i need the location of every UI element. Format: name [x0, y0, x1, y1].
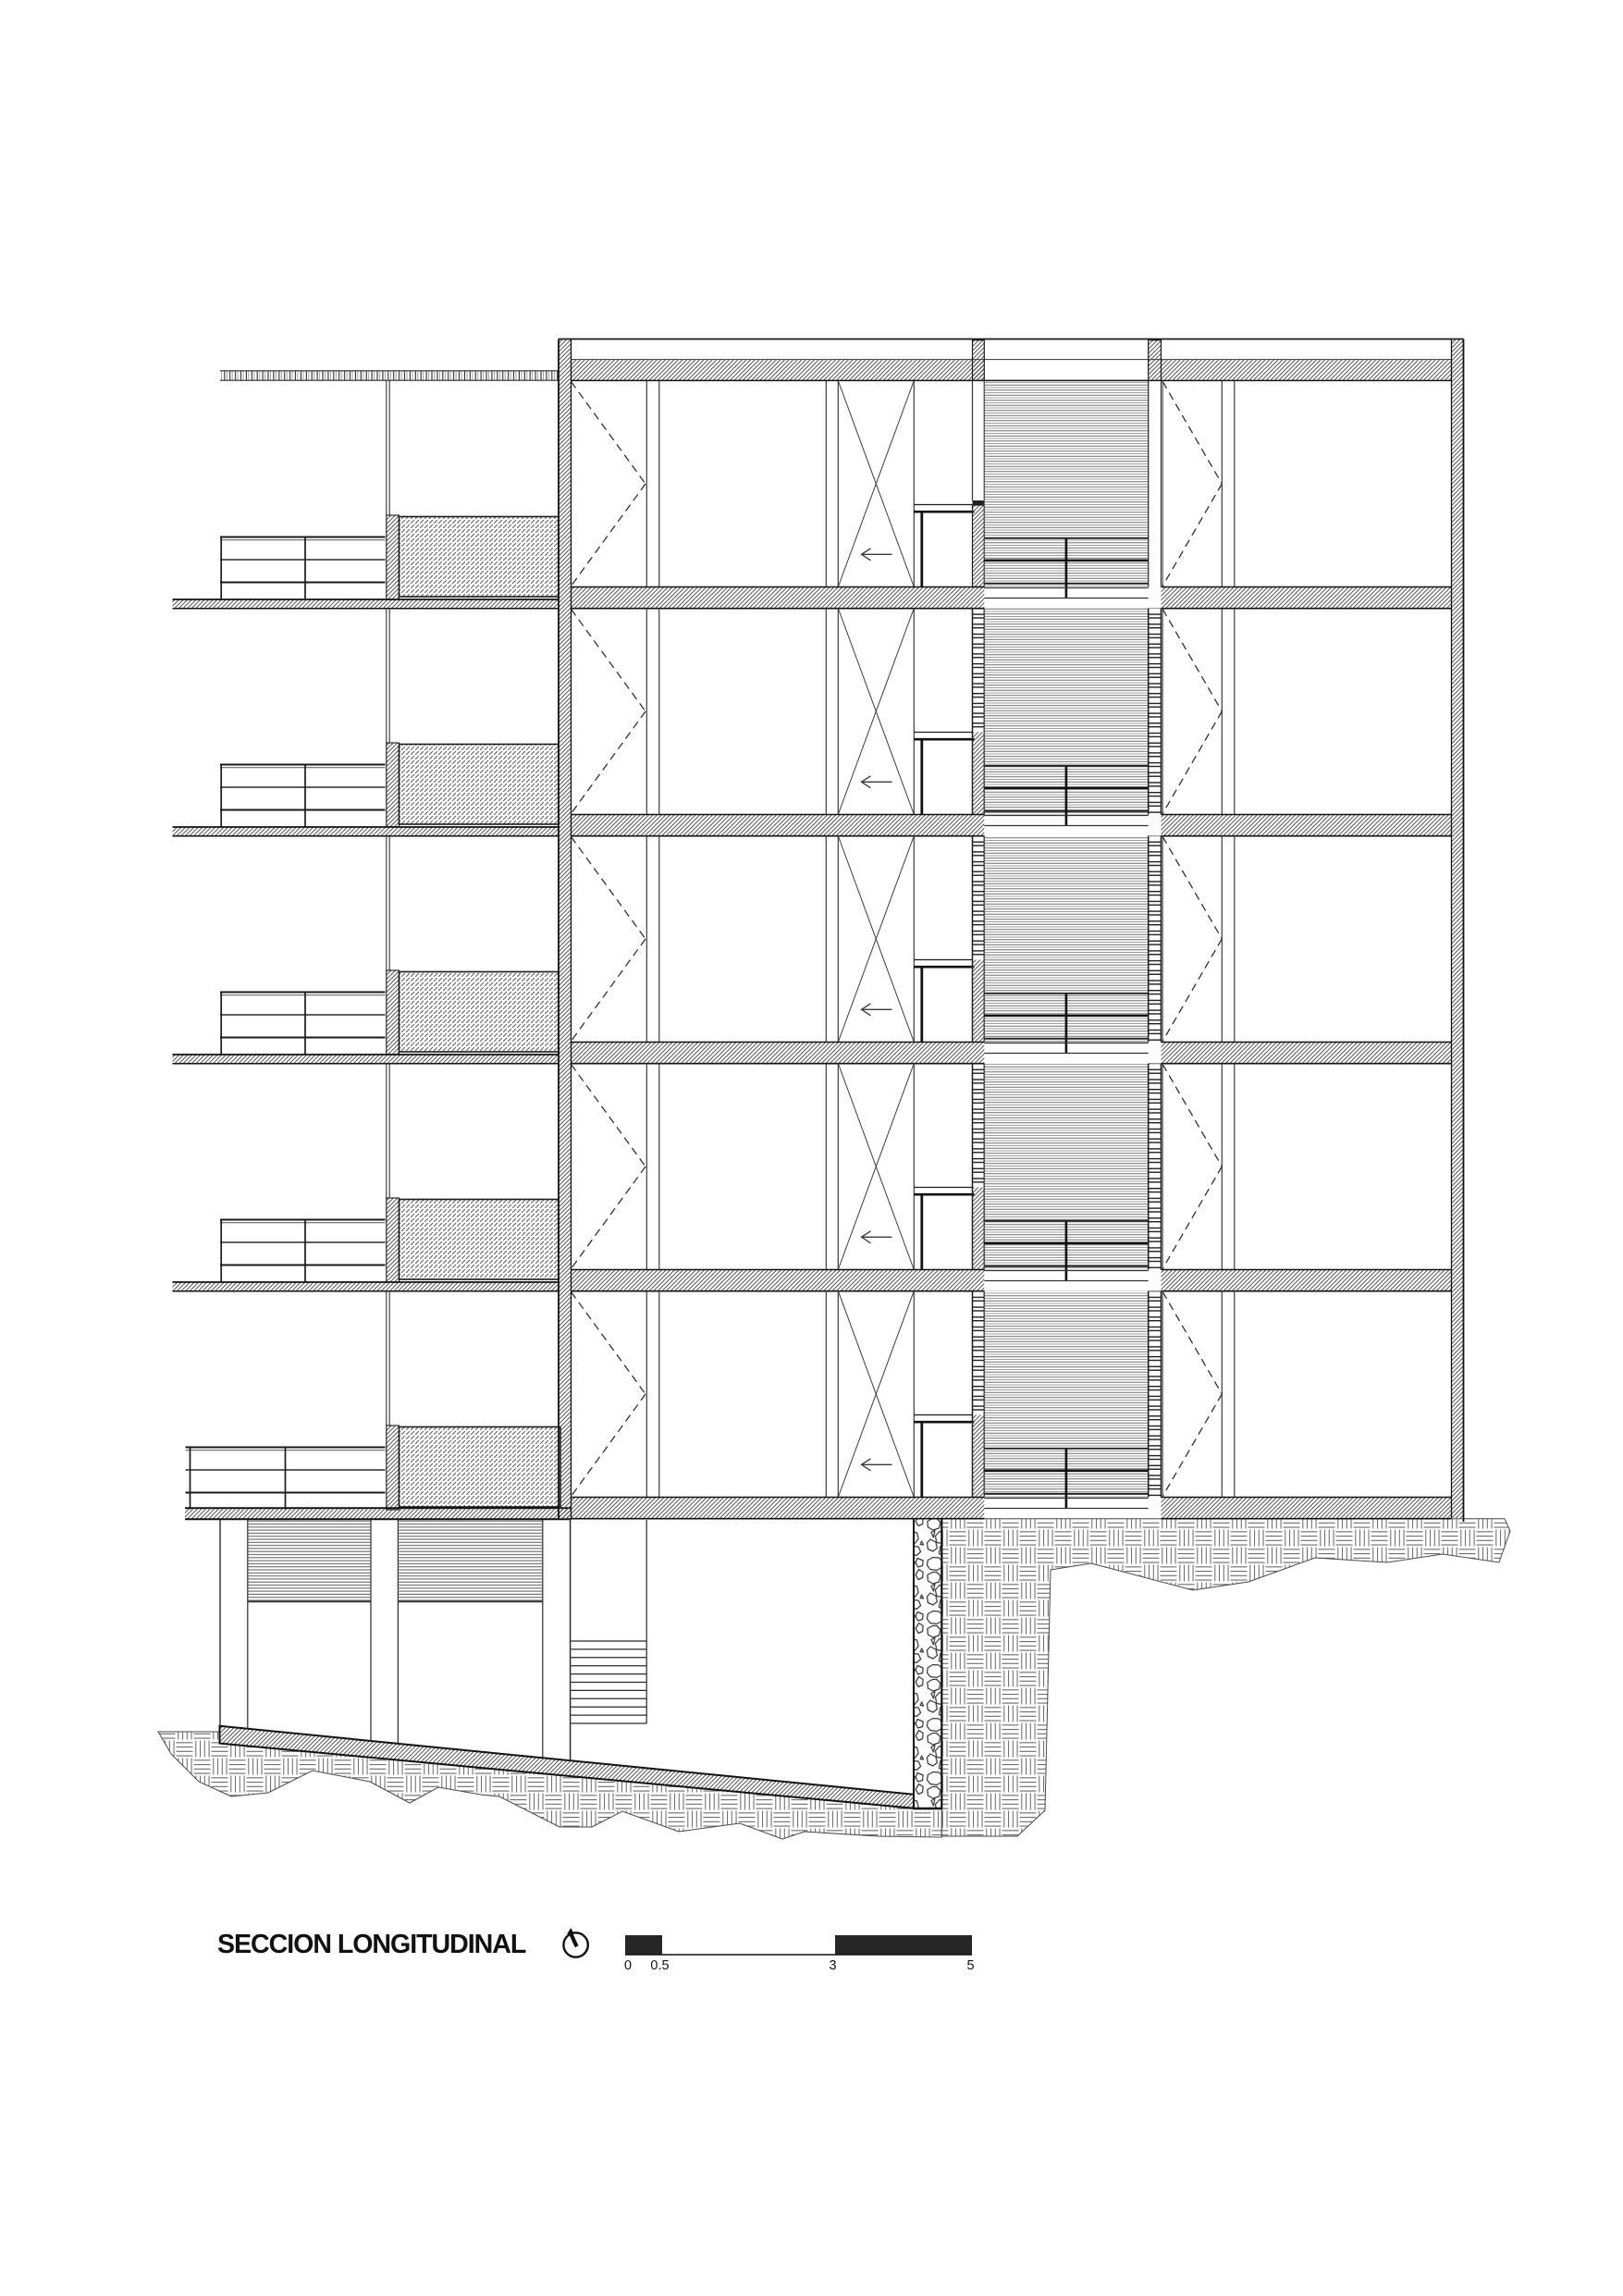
svg-text:3: 3: [829, 1958, 836, 1973]
svg-text:5: 5: [966, 1958, 974, 1973]
svg-text:0: 0: [624, 1958, 632, 1973]
svg-text:SECCION LONGITUDINAL: SECCION LONGITUDINAL: [217, 1930, 526, 1959]
svg-text:0.5: 0.5: [650, 1958, 669, 1973]
